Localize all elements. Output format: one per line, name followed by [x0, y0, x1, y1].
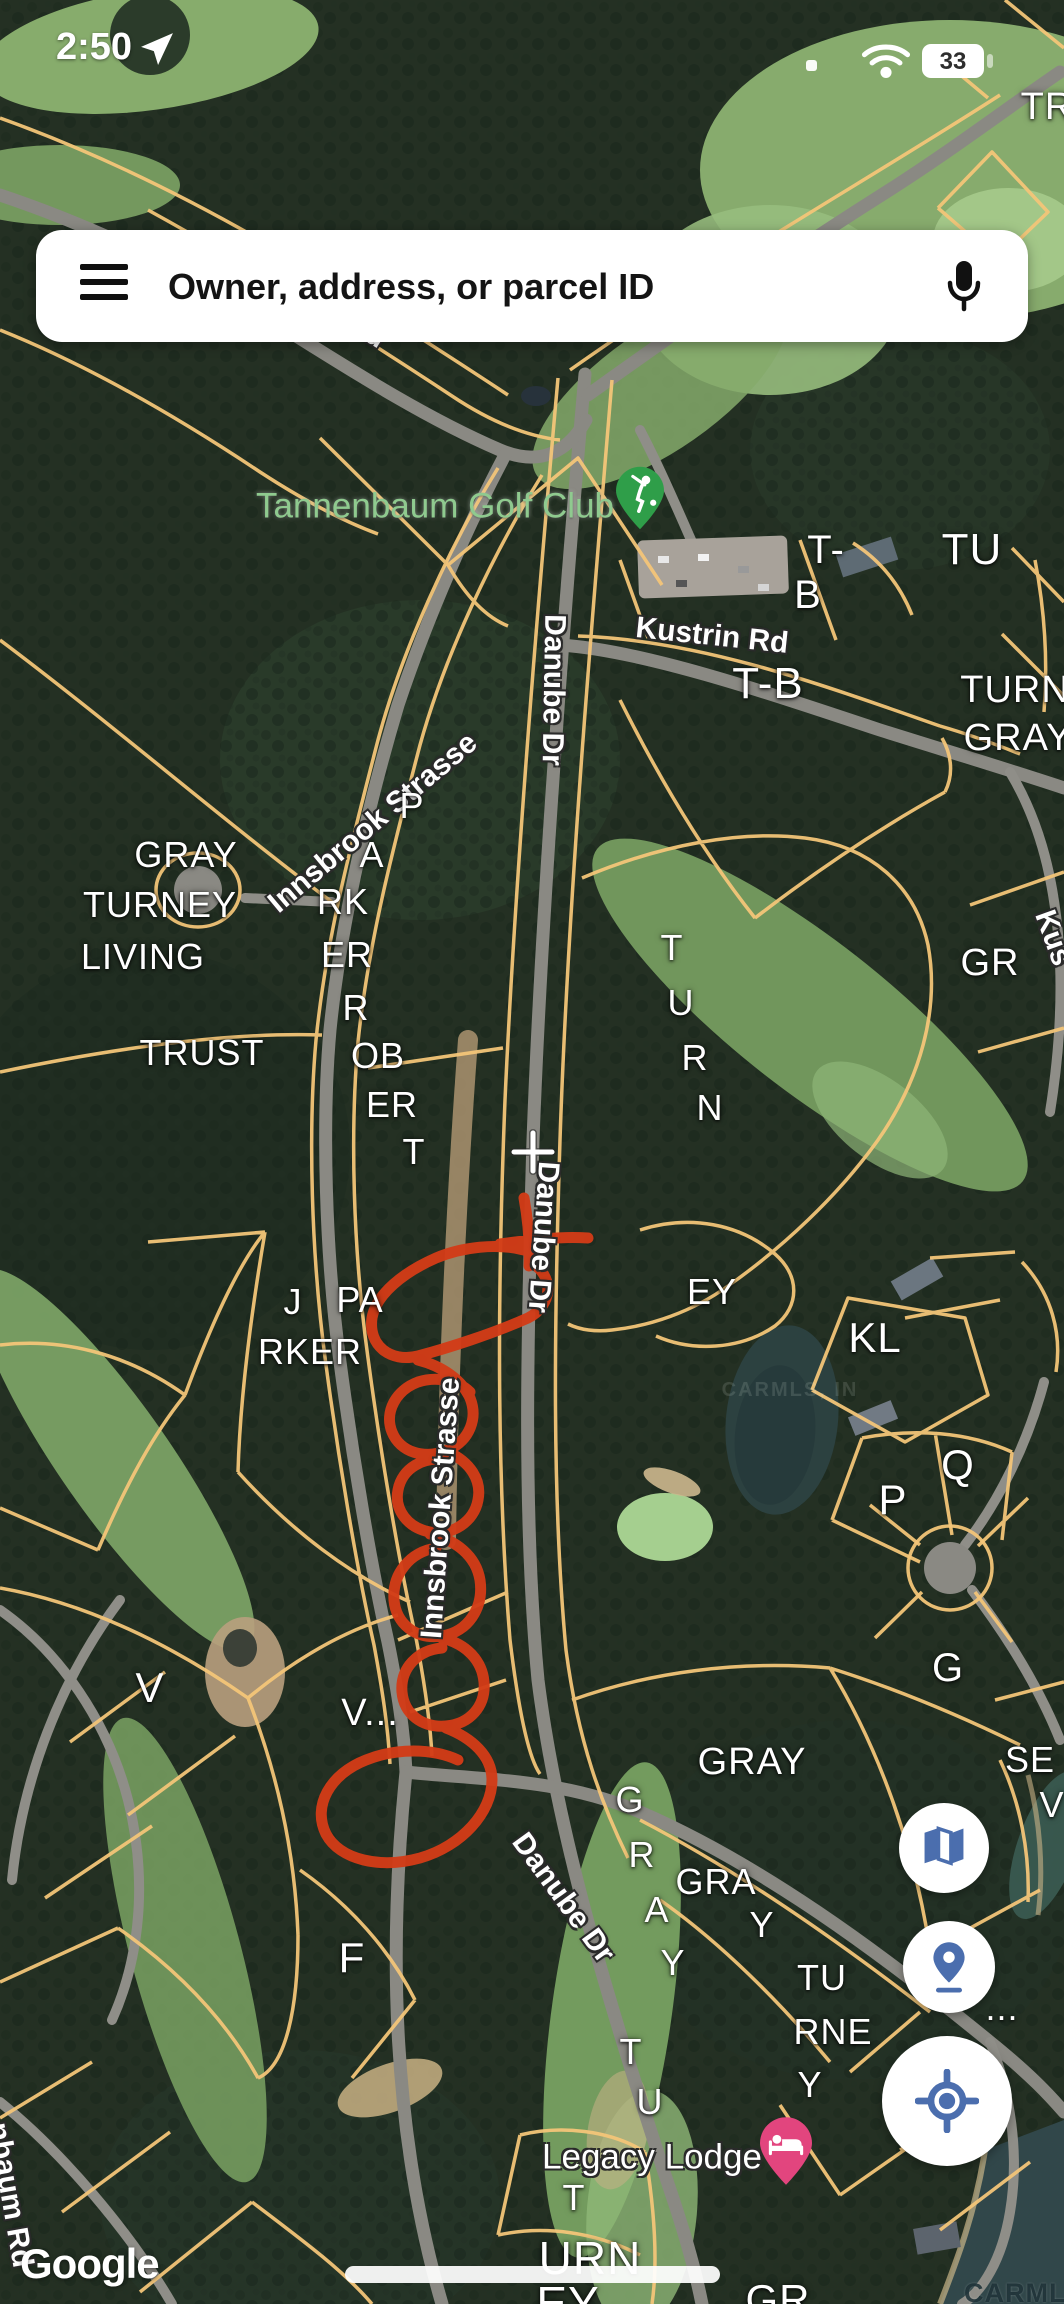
location-pin-icon — [925, 1941, 973, 1993]
map-layers-icon — [919, 1823, 969, 1873]
clock: 2:50 — [56, 26, 132, 69]
google-logo: Google — [20, 2240, 159, 2288]
microphone-icon[interactable] — [944, 258, 984, 321]
location-services-arrow-icon — [140, 32, 174, 71]
lodging-pin-icon[interactable] — [760, 2116, 812, 2191]
battery-icon: 33 — [922, 44, 994, 78]
lake-watermark: CARMLS, IN — [722, 1380, 859, 1400]
location-pin-button[interactable] — [903, 1921, 995, 2013]
parcel-map-app: CARMLS, IN nenbaum RdKustrin RdDanube Dr… — [0, 0, 1064, 2304]
golf-club-pin-icon[interactable] — [616, 466, 664, 535]
map-layers-button[interactable] — [899, 1803, 989, 1893]
my-location-button[interactable] — [882, 2036, 1012, 2166]
my-location-icon — [915, 2069, 979, 2133]
cellular-dot-icon — [806, 60, 817, 71]
status-bar: 2:50 33 — [0, 0, 1064, 100]
scale-bar — [345, 2266, 720, 2283]
battery-percent: 33 — [922, 48, 984, 76]
wifi-icon — [860, 42, 912, 85]
search-input[interactable] — [166, 230, 850, 344]
menu-icon[interactable] — [80, 264, 128, 308]
search-bar — [36, 230, 1028, 342]
data-provider-watermark: CARMLS, INC — [964, 2278, 1064, 2304]
